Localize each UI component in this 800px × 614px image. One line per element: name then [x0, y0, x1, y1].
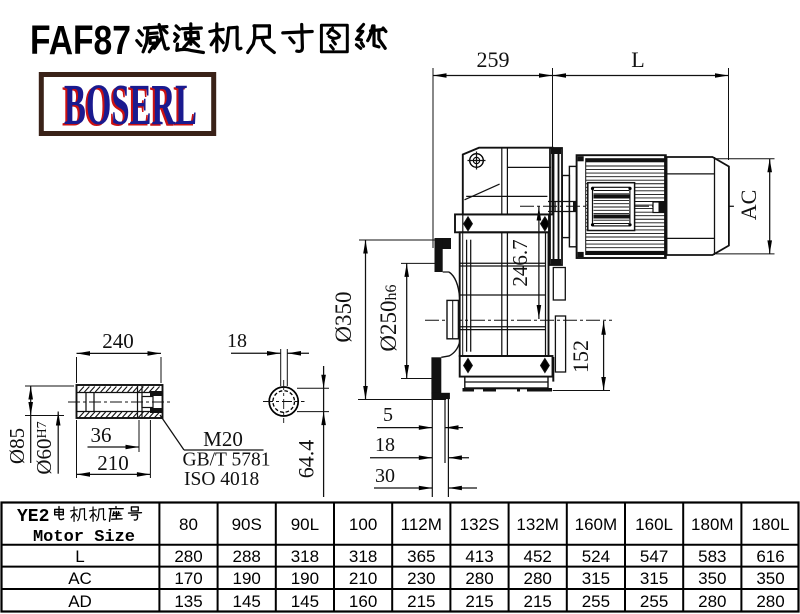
svg-text:413: 413 — [465, 547, 493, 566]
svg-text:FAF87: FAF87 — [30, 17, 131, 63]
svg-text:160: 160 — [349, 592, 377, 611]
svg-text:318: 318 — [349, 547, 377, 566]
svg-text:315: 315 — [582, 569, 610, 588]
svg-text:259: 259 — [477, 47, 510, 72]
svg-text:160L: 160L — [635, 515, 673, 534]
svg-text:L: L — [631, 47, 644, 72]
svg-text:L: L — [75, 547, 84, 566]
svg-text:90S: 90S — [232, 515, 262, 534]
svg-text:36: 36 — [91, 423, 112, 447]
svg-text:215: 215 — [465, 592, 493, 611]
svg-text:170: 170 — [174, 569, 202, 588]
svg-text:215: 215 — [524, 592, 552, 611]
svg-text:350: 350 — [756, 569, 784, 588]
svg-text:5: 5 — [383, 404, 393, 426]
svg-text:Ø350: Ø350 — [331, 291, 356, 342]
svg-text:288: 288 — [233, 547, 261, 566]
svg-text:230: 230 — [407, 569, 435, 588]
svg-text:ISO 4018: ISO 4018 — [184, 469, 259, 490]
svg-text:YE2: YE2 — [17, 507, 49, 527]
svg-text:135: 135 — [174, 592, 202, 611]
svg-text:365: 365 — [407, 547, 435, 566]
svg-text:160M: 160M — [575, 515, 618, 534]
svg-text:210: 210 — [97, 451, 129, 475]
svg-text:190: 190 — [233, 569, 261, 588]
svg-text:80: 80 — [179, 515, 198, 534]
svg-text:18: 18 — [375, 434, 395, 456]
svg-text:255: 255 — [640, 592, 668, 611]
svg-text:Ø85: Ø85 — [5, 428, 29, 464]
svg-text:616: 616 — [756, 547, 784, 566]
svg-text:132M: 132M — [516, 515, 559, 534]
svg-text:Motor Size: Motor Size — [33, 528, 135, 547]
svg-text:112M: 112M — [401, 515, 442, 534]
svg-text:152: 152 — [568, 340, 593, 373]
svg-text:215: 215 — [407, 592, 435, 611]
svg-text:255: 255 — [582, 592, 610, 611]
svg-text:64.4: 64.4 — [294, 440, 319, 479]
svg-text:547: 547 — [640, 547, 668, 566]
svg-text:524: 524 — [582, 547, 610, 566]
svg-text:280: 280 — [698, 592, 726, 611]
svg-text:583: 583 — [698, 547, 726, 566]
svg-text:100: 100 — [349, 515, 377, 534]
svg-text:145: 145 — [233, 592, 261, 611]
svg-text:280: 280 — [524, 569, 552, 588]
svg-text:452: 452 — [524, 547, 552, 566]
svg-text:210: 210 — [349, 569, 377, 588]
svg-text:315: 315 — [640, 569, 668, 588]
svg-text:90L: 90L — [291, 515, 319, 534]
svg-text:190: 190 — [291, 569, 319, 588]
svg-text:145: 145 — [291, 592, 319, 611]
svg-text:280: 280 — [756, 592, 784, 611]
svg-text:132S: 132S — [460, 515, 500, 534]
svg-text:280: 280 — [465, 569, 493, 588]
svg-text:AC: AC — [68, 569, 92, 588]
svg-text:318: 318 — [291, 547, 319, 566]
svg-text:GB/T 5781: GB/T 5781 — [183, 450, 271, 471]
svg-text:30: 30 — [375, 465, 395, 487]
svg-text:BOSERL: BOSERL — [64, 72, 197, 137]
svg-text:AD: AD — [68, 592, 92, 611]
svg-text:180M: 180M — [691, 515, 734, 534]
svg-text:280: 280 — [174, 547, 202, 566]
svg-text:240: 240 — [102, 329, 134, 353]
svg-text:180L: 180L — [752, 515, 790, 534]
svg-text:AC: AC — [736, 190, 761, 221]
svg-text:M20: M20 — [203, 427, 243, 451]
svg-text:18: 18 — [227, 330, 247, 352]
svg-text:350: 350 — [698, 569, 726, 588]
